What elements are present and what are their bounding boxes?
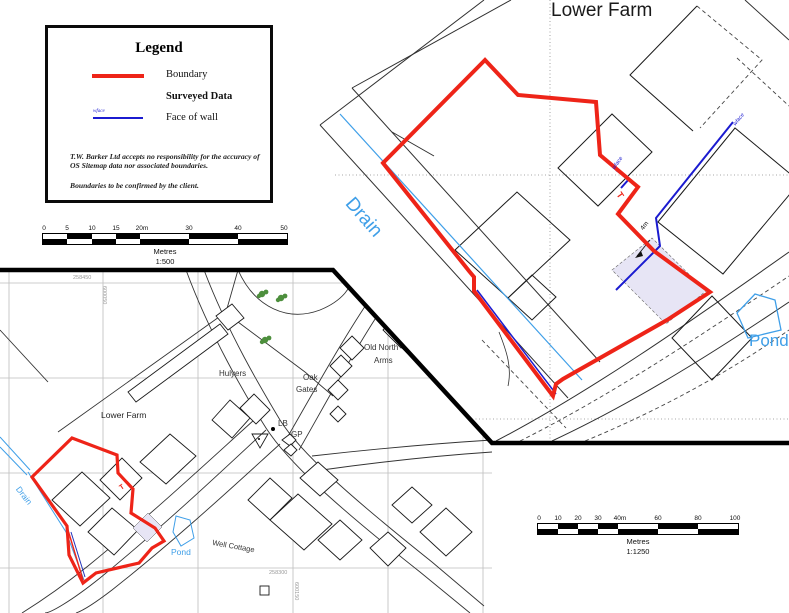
boundary-label: Boundary bbox=[166, 69, 207, 80]
tick: 0 bbox=[537, 515, 541, 522]
tick: 80 bbox=[694, 515, 701, 522]
scalebar-1250-ratio: 1:1250 bbox=[537, 547, 739, 557]
scalebar-500-caption: Metres bbox=[42, 247, 288, 257]
tick: 100 bbox=[730, 515, 741, 522]
tick: 0 bbox=[42, 225, 46, 232]
overview-oak-label: Oak bbox=[303, 374, 318, 382]
scalebar-500-bar bbox=[42, 233, 288, 245]
detail-pond-label: Pond bbox=[749, 332, 789, 349]
scalebar-1250-caption: Metres bbox=[537, 537, 739, 547]
scalebar-1250-bar bbox=[537, 523, 739, 535]
face-of-wall-line-sample bbox=[93, 117, 143, 119]
detail-boundary-red bbox=[383, 60, 710, 396]
legend-wface-tag: wface bbox=[93, 109, 105, 114]
overview-lower-farm-label: Lower Farm bbox=[101, 411, 146, 420]
overview-old-north-label: Old North bbox=[364, 344, 398, 352]
surveyed-data-label: Surveyed Data bbox=[166, 91, 232, 102]
tick: 5 bbox=[65, 225, 69, 232]
triangulation-dot bbox=[258, 438, 260, 440]
grid-northing-top: 258450 bbox=[73, 276, 91, 282]
legend-box: Legend Boundary Surveyed Data wface Face… bbox=[45, 25, 273, 203]
overview-buildings bbox=[52, 288, 472, 595]
tick: 15 bbox=[112, 225, 119, 232]
legend-title: Legend bbox=[48, 40, 270, 57]
tick: 20 bbox=[574, 515, 581, 522]
tick: 10 bbox=[554, 515, 561, 522]
overview-lb-label: LB bbox=[278, 420, 288, 428]
detail-dashed-lines bbox=[482, 6, 789, 441]
overview-gp-label: GP bbox=[291, 431, 303, 439]
overview-hulyers-label: Hulyers bbox=[219, 370, 246, 378]
detail-drain-line bbox=[340, 114, 582, 380]
tick: 40m bbox=[614, 515, 627, 522]
scalebar-1250: 0 10 20 30 40m 60 80 100 Metres 1:1250 bbox=[537, 515, 739, 557]
tick: 10 bbox=[88, 225, 95, 232]
lb-dot bbox=[271, 427, 275, 431]
grid-easting-top: 600050 bbox=[101, 286, 107, 304]
face-of-wall-label: Face of wall bbox=[166, 112, 218, 123]
scalebar-500-ticks: 0 5 10 15 20m 30 40 50 bbox=[42, 225, 288, 233]
legend-disclaimer-2: Boundaries to be confirmed by the client… bbox=[70, 181, 262, 190]
grid-easting-bottom: 600150 bbox=[293, 582, 299, 600]
tick: 20m bbox=[136, 225, 149, 232]
scalebar-1250-ticks: 0 10 20 30 40m 60 80 100 bbox=[537, 515, 739, 523]
tree-symbols bbox=[257, 290, 288, 345]
tick: 50 bbox=[280, 225, 287, 232]
detail-map-title: Lower Farm bbox=[551, 1, 652, 20]
scalebar-500-ratio: 1:500 bbox=[42, 257, 288, 267]
overview-gates-label: Gates bbox=[296, 386, 317, 394]
detail-gridlines bbox=[335, 0, 789, 441]
boundary-line-sample bbox=[92, 74, 144, 78]
overview-arms-label: Arms bbox=[374, 357, 393, 365]
tick: 60 bbox=[654, 515, 661, 522]
detail-map-linework bbox=[320, 0, 789, 441]
survey-sheet: Lower Farm Drain Pond wface wface 4m T L… bbox=[0, 0, 789, 613]
grid-northing-bottom: 258300 bbox=[269, 571, 287, 577]
tick: 30 bbox=[185, 225, 192, 232]
tick: 40 bbox=[234, 225, 241, 232]
overview-pond-label: Pond bbox=[171, 548, 191, 557]
scalebar-500: 0 5 10 15 20m 30 40 50 Metres 1:500 bbox=[42, 225, 288, 267]
legend-disclaimer-1: T.W. Barker Ltd accepts no responsibilit… bbox=[70, 152, 262, 171]
tick: 30 bbox=[594, 515, 601, 522]
overview-map-linework bbox=[0, 270, 492, 613]
